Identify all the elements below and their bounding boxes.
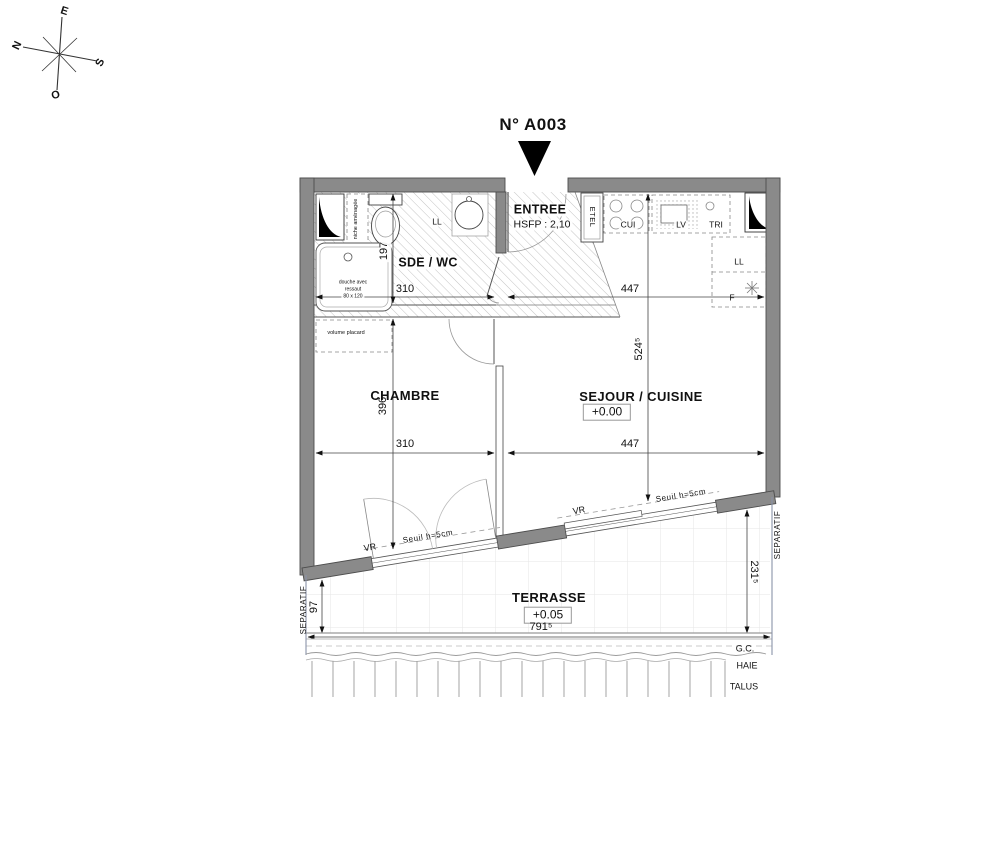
- washer-sde-label: LL: [430, 218, 443, 227]
- entrance-arrow-icon: [518, 141, 551, 176]
- sejour-level-badge: +0.00: [583, 404, 631, 421]
- room-label-terrasse: TERRASSE: [512, 591, 586, 605]
- dim-sde-width: 310: [394, 284, 416, 296]
- light-point-icon: [745, 281, 759, 295]
- hedge-line: [306, 653, 766, 656]
- compass-rose: [23, 17, 97, 90]
- apartment-title: N° A003: [499, 116, 566, 134]
- washer-kitchen-label: LL: [734, 258, 743, 267]
- room-label-sde-wc: SDE / WC: [396, 256, 459, 269]
- hedge-line: [306, 659, 726, 662]
- shower-note-1: douche avec: [337, 280, 369, 285]
- dim-terrace-width: 791⁵: [530, 622, 553, 634]
- tall-unit-label: ETEL: [588, 207, 596, 228]
- entree-ceiling-height: HSFP : 2,10: [511, 219, 572, 230]
- hedge-label: HAIE: [736, 661, 757, 670]
- toilet-cistern: [369, 194, 402, 205]
- washbasin: [455, 201, 483, 229]
- dim-chambre-depth: 396: [378, 397, 390, 415]
- shutter-sejour-label: VR: [572, 505, 586, 516]
- gc-label: G.C.: [736, 644, 755, 653]
- separatif-left-label: SEPARATIF: [300, 586, 308, 635]
- dim-terrace-depth-right: 231⁵: [747, 561, 759, 584]
- fridge-label: F: [729, 294, 734, 303]
- separatif-right-label: SEPARATIF: [774, 511, 782, 560]
- talus-ticks: [312, 661, 725, 697]
- dim-terrace-depth-left: 97: [309, 601, 321, 613]
- bin-label: TRI: [707, 221, 725, 230]
- shower-note-2: ressaut: [343, 287, 363, 292]
- dim-sejour-depth: 524⁵: [634, 338, 646, 361]
- room-label-sejour-cuisine: SEJOUR / CUISINE: [579, 390, 702, 404]
- chambre-door-swing-arc: [449, 319, 494, 364]
- floorplan-canvas: N E S O N° A003 ENTREE HSFP : 2,10 SDE /…: [0, 0, 1000, 857]
- dim-chambre-width: 310: [396, 439, 414, 451]
- slope-label: TALUS: [730, 682, 758, 691]
- dishwasher-label: LV: [674, 221, 688, 230]
- niche-label: niche aménagée: [354, 197, 360, 242]
- dim-kitchen-width: 447: [619, 284, 641, 296]
- shower-note-3: 80 x 120: [341, 294, 364, 299]
- room-label-entree: ENTREE: [512, 203, 569, 216]
- hob-label: CUI: [619, 221, 638, 230]
- closet-label: volume placard: [325, 331, 366, 337]
- shutter-chambre-label: VR: [363, 542, 377, 553]
- dim-sde-depth: 197: [379, 240, 391, 262]
- dim-sejour-width: 447: [621, 439, 639, 451]
